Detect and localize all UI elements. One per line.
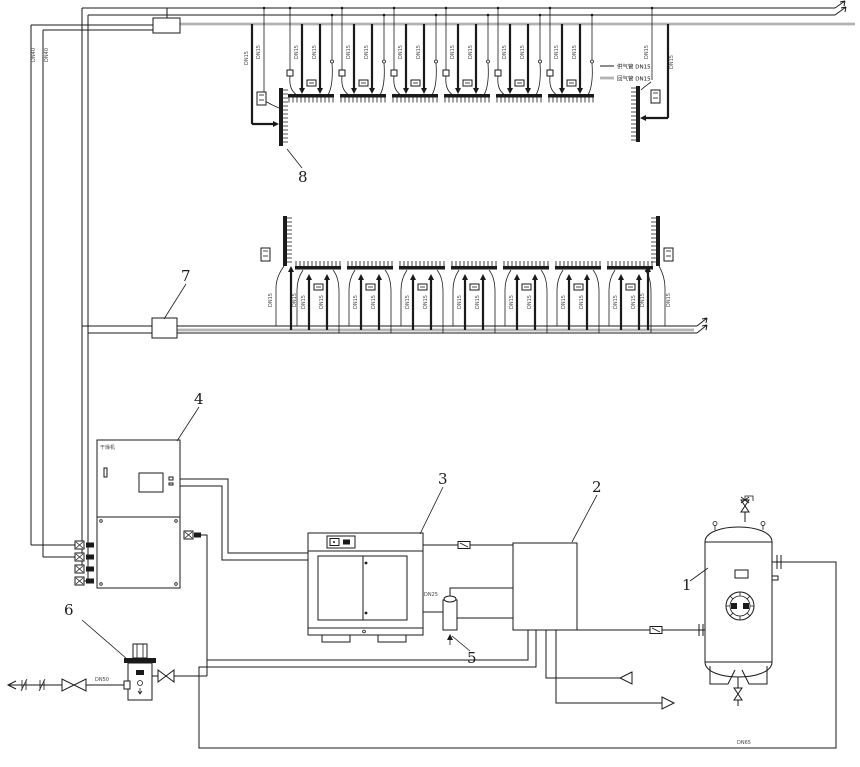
dn15-label: DN15 xyxy=(450,45,456,59)
top-right-vertical-manifold xyxy=(631,7,668,142)
dn15-label: DN15 xyxy=(353,295,359,309)
dn15-label: DN15 xyxy=(364,45,370,59)
top-left-vertical-manifold xyxy=(252,7,288,146)
dn15-label: DN15 xyxy=(613,295,619,309)
cabinet-outlet-fitting xyxy=(184,531,201,539)
dn15-label: DN15 xyxy=(244,51,250,65)
dn15-label: DN15 xyxy=(669,55,675,69)
dn40-label-a: DN40 xyxy=(31,48,37,62)
label-5: 5 xyxy=(467,649,477,667)
dn15-label: DN15 xyxy=(319,295,325,309)
dn15-label: DN15 xyxy=(527,295,533,309)
label-8: 8 xyxy=(298,168,308,186)
dn15-label: DN15 xyxy=(457,295,463,309)
dn25-label: DN25 xyxy=(424,592,438,598)
mid-right-vertical-manifold xyxy=(645,216,673,330)
piping-diagram: DN15DN15DN15DN15DN15DN15DN15DN15DN15DN15… xyxy=(0,0,860,767)
tank-nameplate xyxy=(735,570,748,578)
cabinet-display xyxy=(139,473,163,492)
dn15-label: DN15 xyxy=(416,45,422,59)
dn15-label: DN15 xyxy=(554,45,560,59)
dn15-label: DN15 xyxy=(468,45,474,59)
dn15-label: DN15 xyxy=(294,45,300,59)
diagram-canvas: DN15DN15DN15DN15DN15DN15DN15DN15DN15DN15… xyxy=(0,0,860,767)
dn50-label: DN50 xyxy=(95,677,109,683)
compressor xyxy=(308,533,423,642)
dn15-label: DN15 xyxy=(371,295,377,309)
dryer-box xyxy=(513,543,577,630)
dn65-label: DN65 xyxy=(737,740,751,746)
dn15-label: DN15 xyxy=(405,295,411,309)
label-4: 4 xyxy=(194,390,204,408)
air-tank xyxy=(699,496,836,706)
dn15-label: DN15 xyxy=(644,45,650,59)
legend-return: 回气管 DN15 xyxy=(617,75,651,83)
separator xyxy=(124,644,156,700)
dn15-label: DN15 xyxy=(502,45,508,59)
cabinet-text: 干燥机 xyxy=(100,444,115,451)
label-7: 7 xyxy=(181,267,191,285)
drain-valve-icon xyxy=(734,677,742,706)
dn15-label: DN15 xyxy=(398,45,404,59)
label-2: 2 xyxy=(592,478,602,496)
dn15-label: DN15 xyxy=(346,45,352,59)
label-3: 3 xyxy=(438,470,448,488)
dn15-label: DN15 xyxy=(268,293,274,307)
filter xyxy=(443,593,457,645)
dn15-label: DN15 xyxy=(561,295,567,309)
dn15-label: DN15 xyxy=(312,45,318,59)
dn15-label: DN15 xyxy=(509,295,515,309)
dn15-label: DN15 xyxy=(475,295,481,309)
control-cabinet: 干燥机 xyxy=(75,440,201,588)
dn15-label: DN15 xyxy=(572,45,578,59)
legend-supply: 供气管 DN15 xyxy=(617,63,651,71)
vent-arrow-icon xyxy=(662,697,674,709)
dn15-label: DN15 xyxy=(640,293,646,307)
drain-funnel-icon xyxy=(620,672,632,684)
dn15-label: DN15 xyxy=(631,295,637,309)
pipe-legend: 供气管 DN15 回气管 DN15 xyxy=(600,63,651,83)
dn15-label: DN15 xyxy=(256,45,262,59)
top-regulator-box xyxy=(153,18,180,33)
dn40-label-b: DN40 xyxy=(44,48,50,62)
mid-regulator-box xyxy=(152,318,177,338)
dn15-label: DN15 xyxy=(579,295,585,309)
mid-left-vertical-manifold xyxy=(261,216,294,330)
dn15-label: DN15 xyxy=(292,293,298,307)
dn15-label: DN15 xyxy=(666,293,672,307)
dn15-label: DN15 xyxy=(520,45,526,59)
safety-valve-icon xyxy=(741,496,753,522)
dn15-label: DN15 xyxy=(301,295,307,309)
label-6: 6 xyxy=(64,601,74,619)
cabinet-inlet-fittings xyxy=(75,541,94,585)
label-1: 1 xyxy=(682,576,692,594)
dn15-label: DN15 xyxy=(423,295,429,309)
